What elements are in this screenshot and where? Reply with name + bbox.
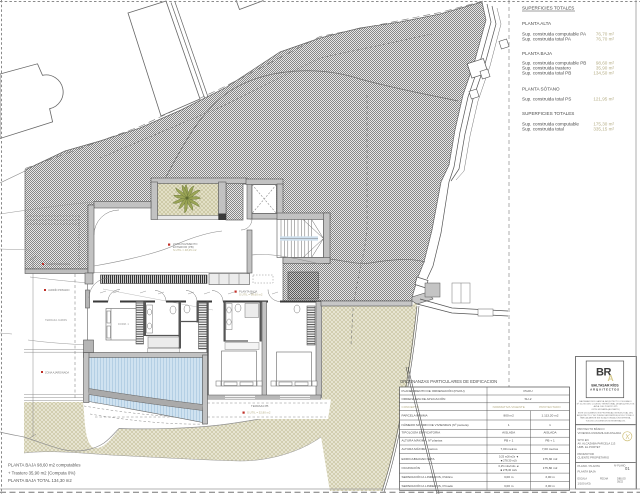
- svg-text:TERRAZA PB: TERRAZA PB: [251, 404, 269, 408]
- svg-text:ALTURA MÁXIMA, metros: ALTURA MÁXIMA, metros: [402, 447, 438, 451]
- svg-text:121,95 m²: 121,95 m²: [593, 97, 614, 102]
- svg-text:Sup. construida total: Sup. construida total: [522, 126, 564, 131]
- svg-text:3,00 m: 3,00 m: [545, 475, 555, 479]
- svg-text:NÚMERO MÁXIMO DE VIVIENDAS (Nº: NÚMERO MÁXIMO DE VIVIENDAS (Nº parcela): [402, 423, 469, 427]
- svg-text:DORM. 1: DORM. 1: [118, 322, 129, 326]
- svg-text:PLANTA ALTA: PLANTA ALTA: [522, 21, 552, 26]
- svg-text:0,25 m2t/m2s ◄: 0,25 m2t/m2s ◄: [499, 455, 519, 459]
- svg-text:SUPERFICIES TOTALES: SUPERFICIES TOTALES: [522, 111, 574, 116]
- svg-text:01: 01: [625, 466, 630, 471]
- svg-text:BALTASAR RÍOS GARCÍA, ARQUITEC: BALTASAR RÍOS GARCÍA, ARQUITECTO COLEGIA…: [579, 400, 632, 403]
- svg-text:335,15 m²: 335,15 m²: [593, 126, 614, 131]
- svg-text:■ 278,30 m2t: ■ 278,30 m2t: [501, 459, 517, 463]
- svg-text:05/22: 05/22: [617, 481, 624, 484]
- svg-text:S.UTIL = 48,25 m2: S.UTIL = 48,25 m2: [173, 248, 197, 252]
- svg-text:JARDÍN PRIVADO: JARDÍN PRIVADO: [48, 288, 70, 292]
- svg-text:1.113,20 m2: 1.113,20 m2: [542, 414, 559, 418]
- svg-text:1: 1: [508, 423, 510, 427]
- svg-text:7,00 metros: 7,00 metros: [501, 447, 518, 451]
- svg-text:PLANEAMIENTO DE ORDENACIÓN (PG: PLANEAMIENTO DE ORDENACIÓN (PGOU): [402, 388, 465, 393]
- svg-text:+ Trastero 35,90 m2 (Computa 0: + Trastero 35,90 m2 (Computa 0%): [8, 471, 76, 476]
- svg-text:7,00 metros: 7,00 metros: [542, 447, 559, 451]
- svg-text:SU-2: SU-2: [524, 397, 531, 401]
- svg-text:PLANTA BAJA 98,60 m2 computabl: PLANTA BAJA 98,60 m2 computables: [8, 463, 81, 468]
- svg-text:SEPARACIÓN A LINDEROS, Público: SEPARACIÓN A LINDEROS, Público: [402, 474, 453, 479]
- svg-text:1: 1: [549, 423, 551, 427]
- svg-text:SEPARACIÓN A LINDEROS, Privado: SEPARACIÓN A LINDEROS, Privado: [402, 483, 454, 488]
- svg-text:PLANTA BAJA TOTAL 134,30 m2: PLANTA BAJA TOTAL 134,30 m2: [8, 478, 72, 483]
- svg-text:A: A: [608, 373, 614, 383]
- svg-text:ARQUITECTO Y NO PUEDE SER REPR: ARQUITECTO Y NO PUEDE SER REPRODUCIDO TO…: [577, 414, 634, 417]
- svg-text:Nº 10.XXX DEL COLEGIO TERRITOR: Nº 10.XXX DEL COLEGIO TERRITORIAL DE ARQ…: [577, 403, 635, 406]
- svg-text:PB + 1: PB + 1: [545, 439, 555, 443]
- svg-text:134,50 m²: 134,50 m²: [593, 71, 614, 76]
- svg-text:Sup. construida total PA: Sup. construida total PA: [522, 37, 572, 42]
- svg-text:PARCIALMENTE SIN SU AUTORIZACI: PARCIALMENTE SIN SU AUTORIZACIÓN EXPRESA…: [580, 417, 631, 420]
- svg-text:PLANTA BAJA: PLANTA BAJA: [578, 470, 596, 474]
- svg-text:ZONA AJARDINADA: ZONA AJARDINADA: [45, 370, 69, 374]
- svg-text:800 m2: 800 m2: [504, 414, 515, 418]
- svg-text:PLANO / PLANTA: PLANO / PLANTA: [578, 464, 601, 468]
- svg-text:ZONA AJARDINADA: ZONA AJARDINADA: [46, 262, 70, 266]
- svg-text:175,30 m2: 175,30 m2: [543, 457, 558, 461]
- svg-text:175,80 m2: 175,80 m2: [543, 466, 558, 470]
- svg-text:Sup. construida total PB: Sup. construida total PB: [522, 71, 571, 76]
- svg-text:Sup. construida total PS: Sup. construida total PS: [522, 97, 571, 102]
- svg-text:ORDENANZA DE APLICACIÓN: ORDENANZA DE APLICACIÓN: [402, 396, 446, 401]
- svg-text:PLANTA BAJA: PLANTA BAJA: [522, 51, 553, 56]
- svg-text:3,00 m: 3,00 m: [545, 484, 555, 488]
- svg-text:VIVIENDA UNIFAMILIAR AISLADA: VIVIENDA UNIFAMILIAR AISLADA: [578, 431, 622, 435]
- svg-text:1/100 (A3): 1/100 (A3): [578, 482, 591, 486]
- svg-text:ESCALA: ESCALA: [578, 478, 588, 481]
- svg-text:ORDENANZAS PARTICULARES DE EDI: ORDENANZAS PARTICULARES DE EDIFICACION: [400, 379, 497, 384]
- svg-text:TIPOLOGÍA EDIFICATORIA: TIPOLOGÍA EDIFICATORIA: [402, 431, 442, 435]
- svg-text:TERRAZA JARDIN: TERRAZA JARDIN: [45, 318, 67, 322]
- svg-text:ESTE DOCUMENTO ES PROPIEDAD IN: ESTE DOCUMENTO ES PROPIEDAD INTELECTUAL …: [578, 412, 634, 415]
- svg-text:TODOS LOS DERECHOS RESERVADOS.: TODOS LOS DERECHOS RESERVADOS.: [586, 419, 626, 422]
- svg-text:PROYECTADO: PROYECTADO: [539, 405, 561, 409]
- svg-text:3,00 m: 3,00 m: [504, 475, 514, 479]
- svg-text:CONCEPTO: CONCEPTO: [402, 405, 420, 409]
- svg-text:3,00 m: 3,00 m: [504, 484, 514, 488]
- svg-text:AISLADA: AISLADA: [543, 431, 557, 435]
- svg-text:AVDA. DEL PUERTO Nº5: AVDA. DEL PUERTO Nº5: [594, 405, 619, 408]
- svg-text:PARCELA MÍNIMA: PARCELA MÍNIMA: [402, 414, 429, 418]
- svg-text:0,25 m2s/m2s ◄: 0,25 m2s/m2s ◄: [499, 464, 520, 468]
- svg-text:ALTURA MÁXIMA, Nº plantas: ALTURA MÁXIMA, Nº plantas: [402, 439, 443, 443]
- svg-text:PGOU: PGOU: [523, 389, 532, 393]
- svg-text:PB + 1: PB + 1: [504, 439, 514, 443]
- svg-text:FECHA: FECHA: [600, 478, 609, 481]
- svg-text:76,70 m²: 76,70 m²: [596, 37, 615, 42]
- svg-text:PLANTA SÓTANO: PLANTA SÓTANO: [522, 86, 560, 92]
- svg-text:OCUPACIÓN: OCUPACIÓN: [402, 465, 421, 470]
- svg-text:SUPERFICIES TOTALES: SUPERFICIES TOTALES: [522, 6, 574, 11]
- svg-text:NORMATIVA VIGENTE: NORMATIVA VIGENTE: [493, 405, 525, 409]
- svg-text:S.UTIL = 52,80 m2: S.UTIL = 52,80 m2: [247, 411, 271, 415]
- svg-text:03724 MORAIRA (ALICANTE): 03724 MORAIRA (ALICANTE): [591, 408, 619, 411]
- svg-text:CLIENTE PROPIETARIO: CLIENTE PROPIETARIO: [578, 456, 610, 460]
- svg-text:ARQUITECTOS: ARQUITECTOS: [590, 387, 620, 391]
- svg-text:S.UTIL = 98,60 m2: S.UTIL = 98,60 m2: [239, 293, 263, 297]
- svg-text:Nº PLANO: Nº PLANO: [614, 464, 626, 468]
- svg-text:■ 278,30 m2s: ■ 278,30 m2s: [500, 468, 517, 472]
- svg-text:AISLADA: AISLADA: [502, 431, 516, 435]
- svg-text:URB. EL PORTET: URB. EL PORTET: [578, 445, 601, 449]
